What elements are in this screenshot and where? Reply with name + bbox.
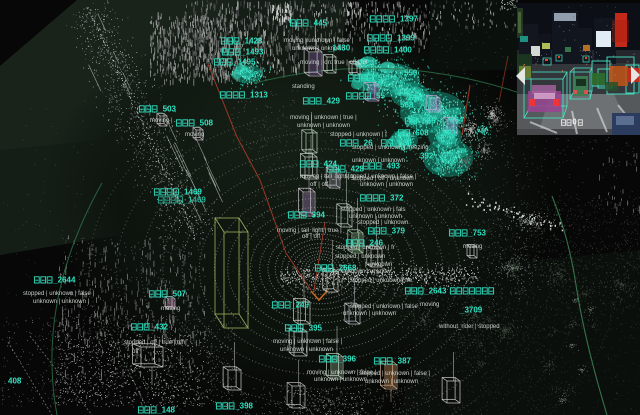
svg-text:408: 408: [8, 377, 22, 386]
svg-text:_428: _428: [345, 165, 364, 174]
svg-text:_3709: _3709: [459, 306, 483, 315]
svg-text:stopped | unknown | fre: stopped | unknown | fre: [350, 278, 413, 284]
svg-text:unknown | unknown: unknown | unknown: [297, 123, 350, 129]
svg-text:_432: _432: [149, 323, 168, 332]
svg-text:_1400: _1400: [389, 46, 413, 55]
svg-text:_503: _503: [157, 105, 176, 114]
svg-text:unknown | unknown: unknown | unknown: [343, 311, 396, 317]
svg-text:standing: standing: [292, 84, 315, 90]
svg-text:550: 550: [404, 69, 418, 78]
svg-text:moving | on: true | off | off: moving | on: true | off | off: [300, 60, 368, 66]
svg-text:_1428: _1428: [239, 37, 263, 46]
svg-text:stopped | unknown | false |: stopped | unknown | false |: [23, 291, 94, 297]
svg-text:moving | unknown | true |: moving | unknown | true |: [290, 115, 357, 121]
svg-text:_395: _395: [303, 324, 322, 333]
svg-text:unknown | unknown |: unknown | unknown |: [33, 299, 90, 305]
svg-text:unknown | unknown: unknown | unknown: [352, 158, 405, 164]
svg-text:unknown | unknown: unknown | unknown: [360, 182, 413, 188]
svg-text:without_rider | stopped: without_rider | stopped: [438, 324, 500, 330]
svg-text:moving: moving: [420, 302, 439, 308]
svg-text:_1430: _1430: [327, 44, 351, 53]
svg-text:_2643: _2643: [423, 287, 447, 296]
svg-text:stopped | unknown | fals: stopped | unknown | fals: [341, 207, 406, 213]
svg-text:moving | unknown | false |: moving | unknown | false |: [273, 339, 342, 345]
svg-text:| unknown: | unknown: [365, 262, 392, 268]
svg-text:moving: moving: [185, 132, 204, 138]
svg-text:_387: _387: [392, 357, 411, 366]
svg-text:off | off: off | off: [302, 234, 320, 240]
svg-text:_508: _508: [194, 119, 213, 128]
svg-text:_1495: _1495: [232, 58, 256, 67]
svg-text:_1397: _1397: [395, 15, 419, 24]
svg-text:moving: moving: [463, 244, 482, 250]
svg-text:_566: _566: [417, 117, 436, 126]
svg-text:stopped | unknown: stopped | unknown: [358, 220, 408, 226]
svg-text:unknown | unknown: unknown | unknown: [280, 347, 333, 353]
svg-text:_608: _608: [410, 129, 429, 138]
svg-text:_1399: _1399: [392, 34, 416, 43]
svg-text:_55: _55: [371, 92, 386, 101]
svg-text:_507: _507: [167, 290, 186, 299]
svg-text:_1469: _1469: [183, 196, 207, 205]
svg-text:_249: _249: [290, 301, 309, 310]
svg-text:0: 0: [572, 118, 577, 127]
svg-text:| unknown | unknow: | unknown | unknow: [338, 269, 391, 275]
svg-text:_396: _396: [337, 355, 356, 364]
svg-text:moving |: moving |: [150, 118, 173, 124]
svg-text:568: 568: [400, 101, 414, 110]
svg-text:_394: _394: [306, 211, 325, 220]
svg-text:unknown | unknown: unknown | unknown: [365, 379, 418, 385]
svg-text:stopped | unknown | f: stopped | unknown | f: [330, 132, 387, 138]
svg-text:564: 564: [450, 116, 464, 125]
svg-text:_429: _429: [321, 97, 340, 106]
svg-text:392: 392: [420, 152, 434, 161]
svg-text:_753: _753: [467, 229, 486, 238]
svg-text:off: off: [132, 349, 139, 355]
svg-text:stopped | unknown | fr: stopped | unknown | fr: [336, 245, 395, 251]
svg-text:_1313: _1313: [245, 91, 269, 100]
svg-text:stopped | off | true | off |: stopped | off | true | off |: [124, 340, 187, 346]
svg-text:_680: _680: [393, 139, 412, 148]
svg-text:_445: _445: [308, 19, 327, 28]
svg-text:_148: _148: [156, 406, 175, 415]
svg-text:_424: _424: [318, 160, 337, 169]
svg-text:_1493: _1493: [240, 48, 264, 57]
svg-text:off | off: off | off: [310, 182, 328, 188]
svg-text:_5: _5: [373, 74, 383, 83]
svg-text:_398: _398: [234, 402, 253, 411]
svg-text:_379: _379: [386, 227, 405, 236]
svg-text:unknown | unknown: unknown | unknown: [314, 377, 367, 383]
svg-text:981: 981: [443, 129, 457, 138]
svg-text:moving: moving: [161, 306, 180, 312]
svg-text:stopped | unknown: stopped | unknown: [335, 254, 385, 260]
svg-text:_26: _26: [358, 139, 373, 148]
svg-text:stopped | off | unknown: stopped | off | unknown: [352, 176, 414, 182]
svg-text:moving | tail_light | tr: moving | tail_light | tr: [300, 174, 355, 180]
svg-text:_2644: _2644: [52, 276, 76, 285]
svg-text:_372: _372: [385, 194, 404, 203]
svg-text:stopped | unknown | false |: stopped | unknown | false |: [359, 371, 430, 377]
svg-text:stopped | unknown | false: stopped | unknown | false: [350, 304, 418, 310]
